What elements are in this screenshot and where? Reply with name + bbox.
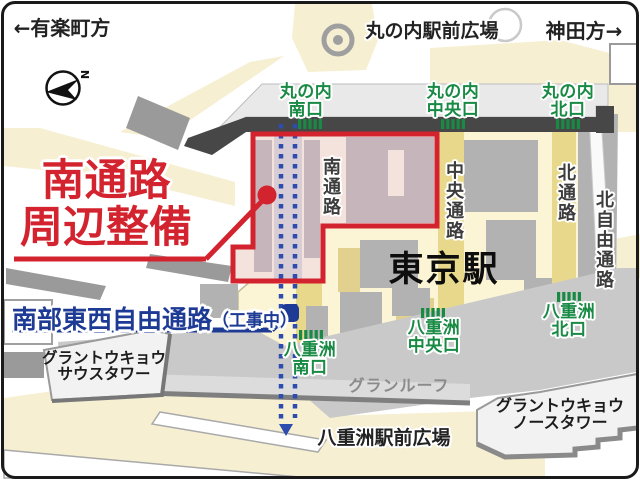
granroof-label: グランルーフ bbox=[348, 378, 449, 395]
gate-label-yaesu-central: 八重洲中央口 bbox=[408, 319, 461, 355]
roundabout-center bbox=[333, 35, 343, 45]
south-tower-label: グラントウキョウサウスタワー bbox=[42, 350, 166, 383]
direction-kanda: 神田方→ bbox=[546, 21, 623, 42]
yaesu-plaza-label: 八重洲駅前広場 bbox=[317, 428, 450, 448]
corridor-label-central: 中央通路 bbox=[440, 161, 466, 241]
corridor-label-north: 北通路 bbox=[552, 163, 578, 223]
compass-north-label: N bbox=[78, 70, 91, 79]
station-name-label: 東京駅 bbox=[388, 252, 499, 289]
city-block bbox=[610, 44, 638, 84]
gate-label-marunouchi-south: 丸の内南口 bbox=[280, 83, 333, 119]
station-map: ←有楽町方 丸の内駅前広場 神田方→ N 丸の内南口 丸の内中央口 丸の内北口 … bbox=[0, 0, 640, 480]
construction-passage-label: 南部東西自由通路（工事中） bbox=[12, 300, 297, 336]
gate-label-yaesu-south: 八重洲南口 bbox=[284, 341, 337, 377]
corridor-label-north-free: 北自由通路 bbox=[590, 190, 616, 290]
direction-yurakucho: ←有楽町方 bbox=[14, 18, 111, 39]
highlight-leader-dot bbox=[258, 186, 277, 205]
corridor-label-south: 南通路 bbox=[317, 157, 343, 217]
gate-label-marunouchi-north: 丸の内北口 bbox=[542, 83, 595, 119]
gate-label-marunouchi-central: 丸の内中央口 bbox=[427, 83, 480, 119]
marunouchi-plaza-label: 丸の内駅前広場 bbox=[365, 21, 498, 41]
compass-icon bbox=[46, 72, 80, 105]
gate-label-yaesu-north: 八重洲北口 bbox=[543, 303, 596, 339]
north-tower-label: グラントウキョウノースタワー bbox=[496, 398, 624, 432]
highlight-title: 南通路周辺整備 bbox=[20, 158, 192, 253]
